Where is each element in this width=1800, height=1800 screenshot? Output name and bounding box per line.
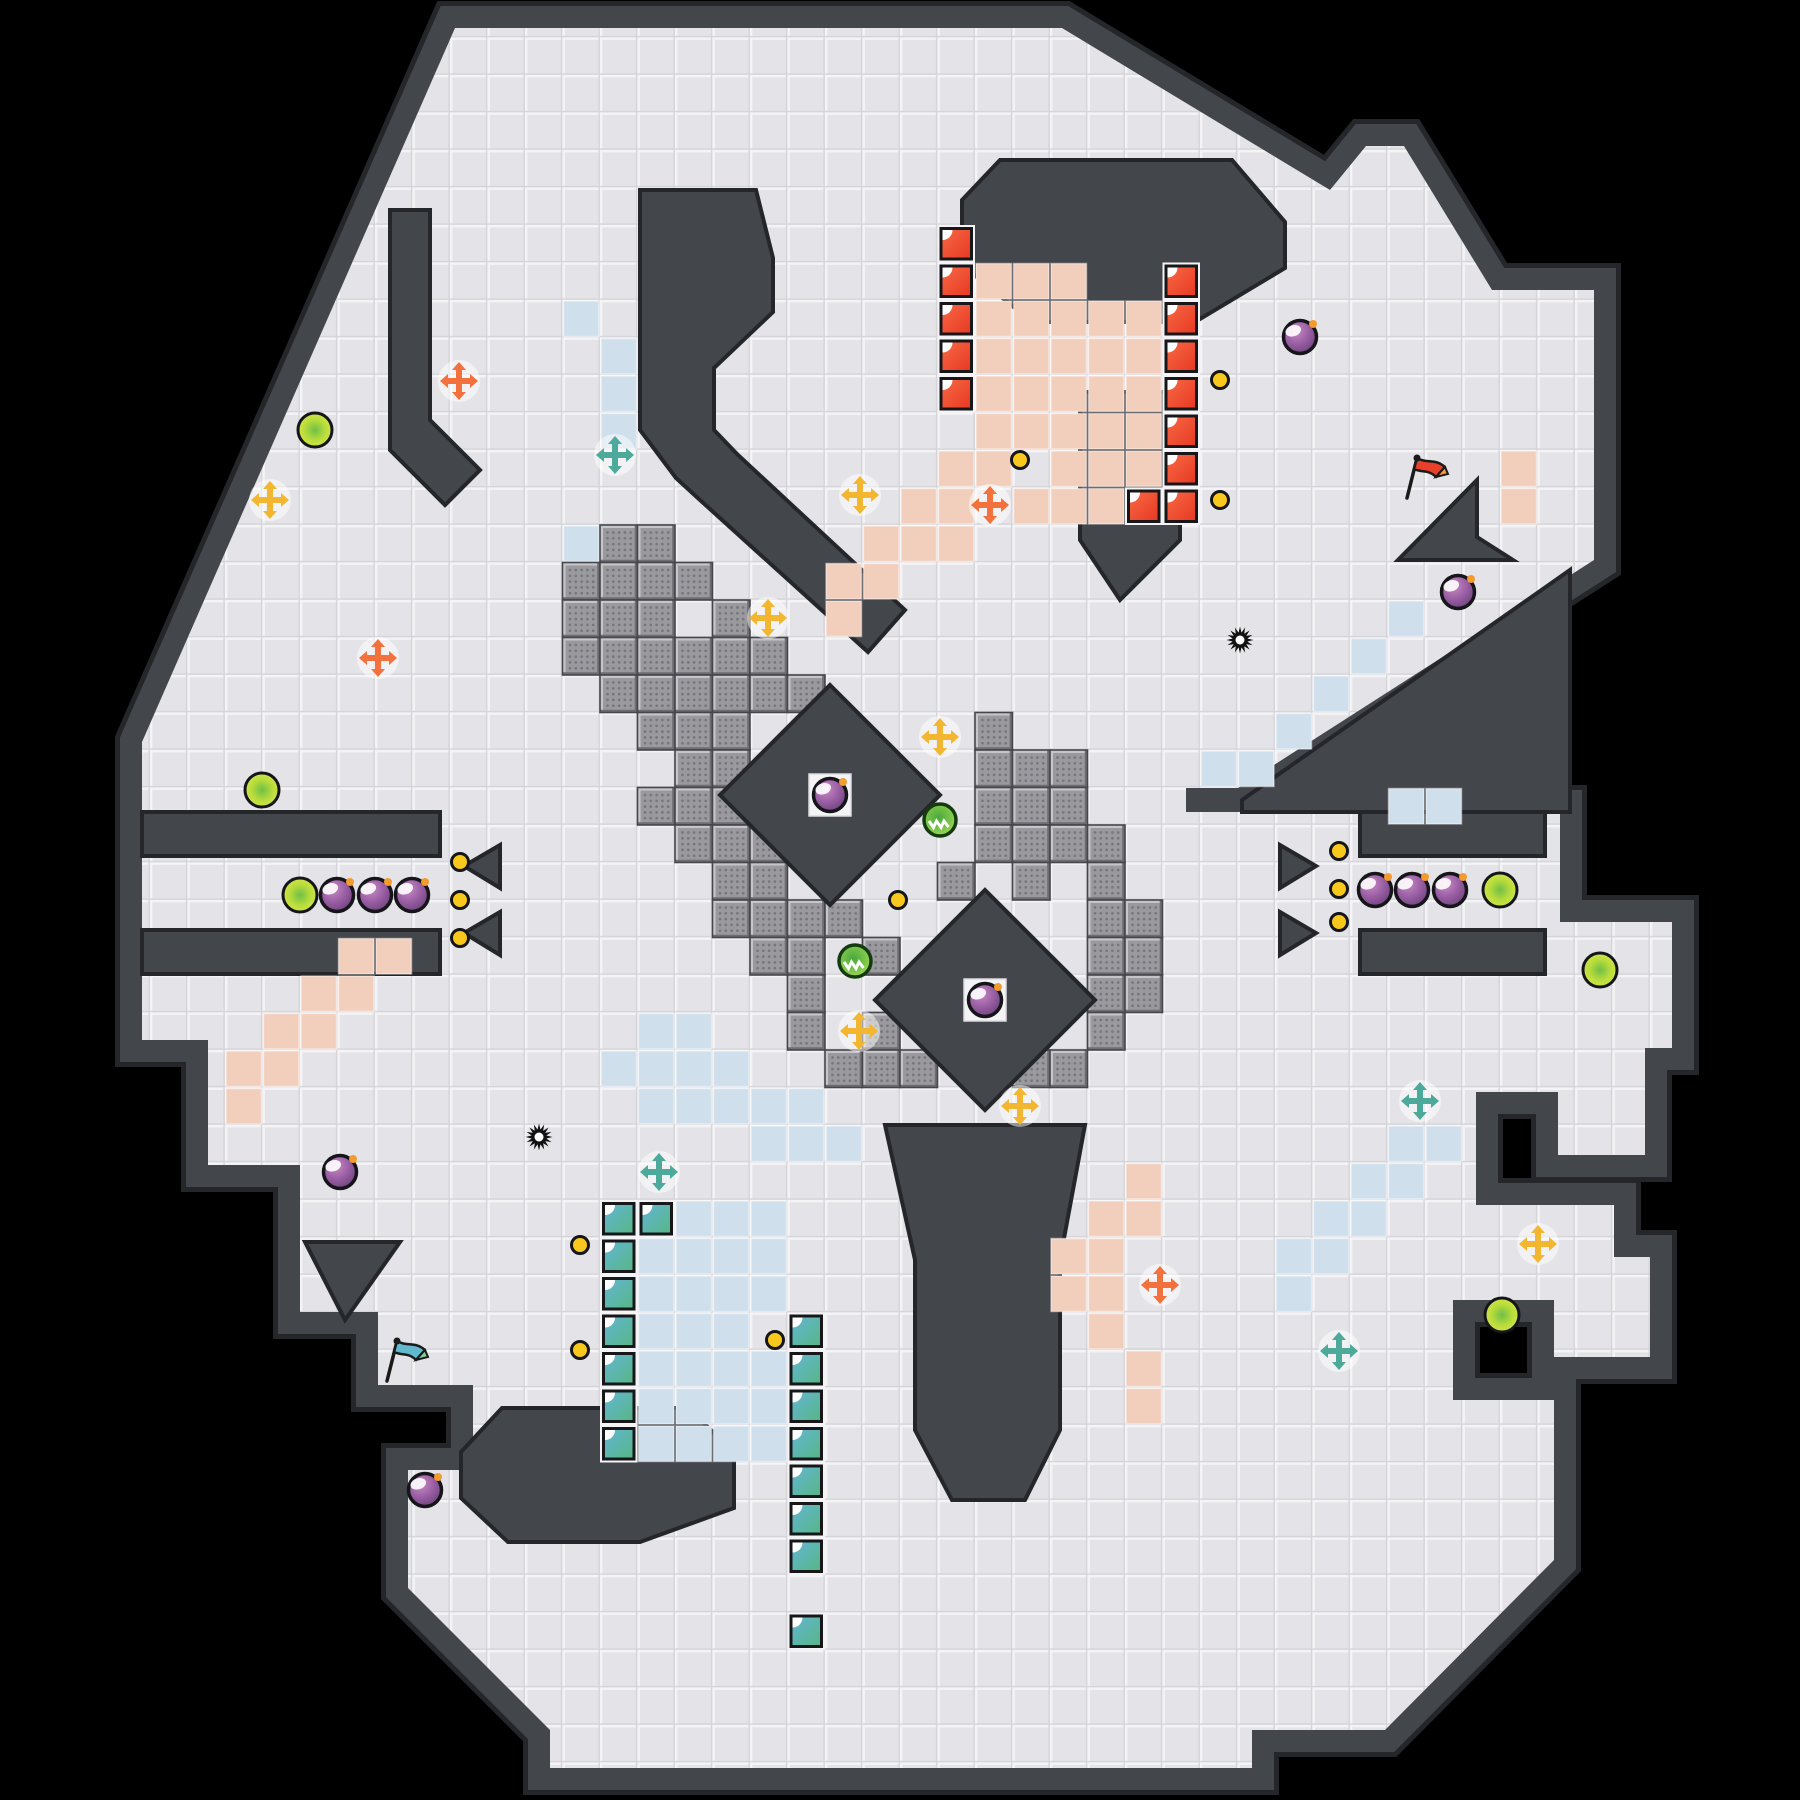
blue-floor-tile <box>714 1426 750 1462</box>
pink-floor-tile <box>1014 339 1050 375</box>
bomb-item[interactable] <box>1284 320 1318 354</box>
gray-block <box>1088 975 1126 1013</box>
blue-floor-tile <box>714 1051 750 1087</box>
coin-item[interactable] <box>572 1237 589 1254</box>
red-block <box>1163 300 1201 338</box>
lime-orb-item[interactable] <box>1583 953 1617 987</box>
blue-floor-tile <box>1351 1201 1387 1237</box>
gray-block <box>600 600 638 638</box>
blue-floor-tile <box>1351 639 1387 675</box>
pink-floor-tile <box>976 264 1012 300</box>
pink-floor-tile <box>1051 264 1087 300</box>
bomb-spark-icon <box>349 1155 357 1163</box>
red-block <box>938 300 976 338</box>
game-map <box>0 0 1800 1800</box>
teal-block <box>600 1425 638 1463</box>
coin-item[interactable] <box>1212 372 1229 389</box>
teal-block <box>600 1200 638 1238</box>
gray-block <box>788 900 826 938</box>
gray-block <box>713 825 751 863</box>
pink-floor-tile <box>1126 1351 1162 1387</box>
teal-block <box>600 1238 638 1276</box>
pink-floor-tile <box>301 976 337 1012</box>
bomb-spark-icon <box>1309 320 1317 328</box>
gray-block <box>863 1050 901 1088</box>
pink-floor-tile <box>226 1051 262 1087</box>
blue-floor-tile <box>1314 1201 1350 1237</box>
pink-floor-tile <box>1089 376 1125 412</box>
lime-orb-item[interactable] <box>298 413 332 447</box>
pink-floor-tile <box>864 564 900 600</box>
pink-floor-tile <box>1014 489 1050 525</box>
pink-floor-tile <box>1126 301 1162 337</box>
pink-floor-tile <box>1126 1389 1162 1425</box>
gray-block <box>1050 825 1088 863</box>
pink-floor-tile <box>1051 1239 1087 1275</box>
gray-block <box>788 975 826 1013</box>
red-block <box>1163 338 1201 376</box>
gray-block <box>713 600 751 638</box>
move-pad-teal[interactable] <box>1318 1330 1360 1372</box>
pink-floor-tile <box>1089 339 1125 375</box>
move-pad-orange[interactable] <box>1139 1264 1181 1306</box>
pink-floor-tile <box>339 939 375 975</box>
blue-floor-tile <box>1426 789 1462 825</box>
game-viewport <box>0 0 1800 1800</box>
move-pad-teal[interactable] <box>638 1151 680 1193</box>
blue-floor-tile <box>639 1389 675 1425</box>
blue-floor-tile <box>639 1089 675 1125</box>
bomb-item[interactable] <box>324 1155 358 1189</box>
gray-block <box>600 675 638 713</box>
red-block <box>1163 413 1201 451</box>
gray-block <box>1088 863 1126 901</box>
pink-floor-tile <box>901 526 937 562</box>
bomb-spark-icon <box>346 878 354 886</box>
lime-orb-item[interactable] <box>245 773 279 807</box>
bomb-spark-icon <box>384 878 392 886</box>
gray-block <box>675 563 713 601</box>
blue-floor-tile <box>601 1051 637 1087</box>
blue-floor-tile <box>639 1014 675 1050</box>
pink-floor-tile <box>1089 1314 1125 1350</box>
gray-block <box>638 788 676 826</box>
gray-block <box>1088 938 1126 976</box>
blue-floor-tile <box>751 1089 787 1125</box>
gray-block <box>1013 863 1051 901</box>
gray-block <box>638 600 676 638</box>
blue-floor-tile <box>1389 1164 1425 1200</box>
gray-block <box>713 675 751 713</box>
pink-floor-tile <box>1089 1276 1125 1312</box>
gray-block <box>1125 975 1163 1013</box>
red-block <box>938 263 976 301</box>
blue-floor-tile <box>676 1239 712 1275</box>
bomb-spark-icon <box>839 778 847 786</box>
gray-block <box>1050 1050 1088 1088</box>
blue-floor-tile <box>789 1089 825 1125</box>
red-block <box>1163 488 1201 526</box>
gray-block <box>675 638 713 676</box>
gray-block <box>788 1013 826 1051</box>
gray-block <box>750 638 788 676</box>
pink-floor-tile <box>1014 301 1050 337</box>
bomb-item[interactable] <box>359 878 393 912</box>
chomper-item[interactable] <box>839 945 871 977</box>
blue-floor-tile <box>714 1239 750 1275</box>
coin-item[interactable] <box>1012 452 1029 469</box>
teal-block <box>638 1200 676 1238</box>
blue-floor-tile <box>714 1276 750 1312</box>
coin-item[interactable] <box>452 930 469 947</box>
pink-floor-tile <box>264 1014 300 1050</box>
coin-item[interactable] <box>1212 492 1229 509</box>
blue-floor-tile <box>751 1239 787 1275</box>
bomb-item[interactable] <box>396 878 430 912</box>
pink-floor-tile <box>226 1089 262 1125</box>
blue-floor-tile <box>789 1126 825 1162</box>
blue-floor-tile <box>676 1051 712 1087</box>
gray-block <box>938 863 976 901</box>
bomb-spark-icon <box>1467 575 1475 583</box>
pink-floor-tile <box>1089 1201 1125 1237</box>
gray-block <box>1125 938 1163 976</box>
chomper-item[interactable] <box>924 804 956 836</box>
pink-floor-tile <box>976 414 1012 450</box>
move-pad-teal[interactable] <box>1399 1080 1441 1122</box>
coin-item[interactable] <box>572 1342 589 1359</box>
move-pad-yellow[interactable] <box>838 1010 880 1052</box>
pink-floor-tile <box>1014 376 1050 412</box>
bomb-item[interactable] <box>1359 873 1393 907</box>
red-block <box>1163 375 1201 413</box>
gray-block <box>713 638 751 676</box>
gray-block <box>638 638 676 676</box>
move-pad-yellow[interactable] <box>747 597 789 639</box>
bomb-spark-icon <box>1421 873 1429 881</box>
pink-floor-tile <box>1089 451 1125 487</box>
gray-block <box>638 713 676 751</box>
blue-floor-tile <box>1276 1276 1312 1312</box>
pink-floor-tile <box>826 601 862 637</box>
blue-floor-tile <box>676 1014 712 1050</box>
lime-orb-item[interactable] <box>1485 1298 1519 1332</box>
pink-floor-tile <box>1126 414 1162 450</box>
blue-floor-tile <box>676 1426 712 1462</box>
blue-floor-tile <box>676 1201 712 1237</box>
gray-block <box>563 563 601 601</box>
teal-block <box>600 1313 638 1351</box>
gray-block <box>713 713 751 751</box>
pink-floor-tile <box>376 939 412 975</box>
blue-floor-tile <box>751 1389 787 1425</box>
blue-floor-tile <box>1276 714 1312 750</box>
gray-block <box>675 825 713 863</box>
blue-floor-tile <box>751 1201 787 1237</box>
gray-block <box>600 525 638 563</box>
red-block <box>1125 488 1163 526</box>
teal-block <box>788 1350 826 1388</box>
gray-block <box>638 675 676 713</box>
gray-block <box>975 825 1013 863</box>
bomb-spark-icon <box>1384 873 1392 881</box>
gray-block <box>713 863 751 901</box>
pink-floor-tile <box>1501 451 1537 487</box>
coin-item[interactable] <box>1331 843 1348 860</box>
move-pad-teal[interactable] <box>594 434 636 476</box>
coin-item[interactable] <box>452 892 469 909</box>
gray-block <box>975 713 1013 751</box>
blue-floor-tile <box>639 1314 675 1350</box>
blue-floor-tile <box>751 1426 787 1462</box>
pink-floor-tile <box>976 301 1012 337</box>
bomb-item[interactable] <box>1396 873 1430 907</box>
move-pad-orange[interactable] <box>357 637 399 679</box>
pink-floor-tile <box>339 976 375 1012</box>
blue-floor-tile <box>676 1276 712 1312</box>
pink-floor-tile <box>939 451 975 487</box>
bomb-spark-icon <box>434 1473 442 1481</box>
gray-block <box>750 900 788 938</box>
teal-block <box>788 1425 826 1463</box>
pink-floor-tile <box>976 376 1012 412</box>
pink-floor-tile <box>1051 339 1087 375</box>
blue-floor-tile <box>1276 1239 1312 1275</box>
blue-floor-tile <box>1426 1126 1462 1162</box>
gray-block <box>825 1050 863 1088</box>
blue-floor-tile <box>1351 1164 1387 1200</box>
gray-block <box>1088 1013 1126 1051</box>
bomb-spark-icon <box>421 878 429 886</box>
move-pad-yellow[interactable] <box>999 1085 1041 1127</box>
pink-floor-tile <box>1089 414 1125 450</box>
gray-block <box>1088 900 1126 938</box>
gray-block <box>1125 900 1163 938</box>
pink-floor-tile <box>1051 376 1087 412</box>
gray-block <box>1088 825 1126 863</box>
pink-floor-tile <box>1501 489 1537 525</box>
blue-floor-tile <box>676 1389 712 1425</box>
pink-floor-tile <box>1051 414 1087 450</box>
blue-floor-tile <box>1389 1126 1425 1162</box>
teal-block <box>600 1350 638 1388</box>
blue-floor-tile <box>639 1351 675 1387</box>
blue-floor-tile <box>1389 601 1425 637</box>
red-block <box>1163 450 1201 488</box>
red-block <box>938 338 976 376</box>
pink-floor-tile <box>1126 1164 1162 1200</box>
gray-block <box>563 600 601 638</box>
blue-floor-tile <box>826 1126 862 1162</box>
blue-floor-tile <box>564 301 600 337</box>
gray-block <box>1050 788 1088 826</box>
blue-floor-tile <box>1314 1239 1350 1275</box>
teal-block <box>788 1388 826 1426</box>
gear-hazard[interactable] <box>1227 627 1254 654</box>
move-pad-orange[interactable] <box>969 484 1011 526</box>
pink-floor-tile <box>1051 1276 1087 1312</box>
pink-floor-tile <box>1126 1201 1162 1237</box>
teal-block <box>788 1313 826 1351</box>
pink-floor-tile <box>939 489 975 525</box>
pink-floor-tile <box>939 526 975 562</box>
move-pad-yellow[interactable] <box>249 479 291 521</box>
teal-block <box>600 1275 638 1313</box>
pink-floor-tile <box>1014 414 1050 450</box>
pink-floor-tile <box>901 489 937 525</box>
red-block <box>938 375 976 413</box>
gray-block <box>675 713 713 751</box>
pink-floor-tile <box>301 1014 337 1050</box>
blue-floor-tile <box>676 1314 712 1350</box>
coin-item[interactable] <box>767 1332 784 1349</box>
gray-block <box>750 863 788 901</box>
gray-block <box>1013 750 1051 788</box>
teal-block <box>788 1500 826 1538</box>
blue-floor-tile <box>676 1089 712 1125</box>
gray-block <box>600 563 638 601</box>
blue-floor-tile <box>639 1426 675 1462</box>
blue-floor-tile <box>714 1351 750 1387</box>
pink-floor-tile <box>1051 489 1087 525</box>
pink-floor-tile <box>1051 451 1087 487</box>
move-pad-yellow[interactable] <box>919 716 961 758</box>
pink-floor-tile <box>1014 264 1050 300</box>
gray-block <box>563 638 601 676</box>
bomb-item[interactable] <box>321 878 355 912</box>
gray-block <box>675 750 713 788</box>
gray-block <box>675 675 713 713</box>
pink-floor-tile <box>864 526 900 562</box>
blue-floor-tile <box>601 339 637 375</box>
blue-floor-tile <box>1201 751 1237 787</box>
gray-block <box>975 788 1013 826</box>
red-block <box>938 225 976 263</box>
gray-block <box>788 938 826 976</box>
coin-item[interactable] <box>1331 881 1348 898</box>
bomb-item[interactable] <box>1442 575 1476 609</box>
blue-floor-tile <box>714 1089 750 1125</box>
blue-floor-tile <box>676 1351 712 1387</box>
blue-floor-tile <box>1389 789 1425 825</box>
pink-floor-tile <box>1126 376 1162 412</box>
move-pad-yellow[interactable] <box>1517 1223 1559 1265</box>
blue-floor-tile <box>751 1126 787 1162</box>
gray-block <box>675 788 713 826</box>
blue-floor-tile <box>751 1276 787 1312</box>
move-pad-orange[interactable] <box>438 360 480 402</box>
pink-floor-tile <box>264 1051 300 1087</box>
teal-block <box>600 1388 638 1426</box>
gray-block <box>1013 825 1051 863</box>
pink-floor-tile <box>1089 301 1125 337</box>
lime-orb-item[interactable] <box>283 878 317 912</box>
gray-block <box>638 563 676 601</box>
gray-block <box>1013 788 1051 826</box>
blue-floor-tile <box>714 1201 750 1237</box>
coin-item[interactable] <box>1331 914 1348 931</box>
blue-floor-tile <box>639 1276 675 1312</box>
gray-block <box>750 938 788 976</box>
pink-floor-tile <box>1089 489 1125 525</box>
blue-floor-tile <box>1314 676 1350 712</box>
bomb-spark-icon <box>994 983 1002 991</box>
teal-block <box>788 1463 826 1501</box>
coin-item[interactable] <box>452 854 469 871</box>
pink-floor-tile <box>1126 451 1162 487</box>
blue-floor-tile <box>714 1314 750 1350</box>
gray-block <box>600 638 638 676</box>
pink-floor-tile <box>1089 1239 1125 1275</box>
gray-block <box>638 525 676 563</box>
pink-floor-tile <box>976 451 1012 487</box>
gray-block <box>975 750 1013 788</box>
blue-floor-tile <box>601 376 637 412</box>
gear-hazard[interactable] <box>526 1124 553 1151</box>
blue-floor-tile <box>564 526 600 562</box>
blue-floor-tile <box>714 1389 750 1425</box>
pink-floor-tile <box>826 564 862 600</box>
gray-block <box>713 900 751 938</box>
coin-item[interactable] <box>890 892 907 909</box>
lime-orb-item[interactable] <box>1483 873 1517 907</box>
bomb-item[interactable] <box>1434 873 1468 907</box>
gray-block <box>750 675 788 713</box>
bomb-item[interactable] <box>409 1473 443 1507</box>
blue-floor-tile <box>1239 751 1275 787</box>
red-block <box>1163 263 1201 301</box>
gray-block <box>1050 750 1088 788</box>
pink-floor-tile <box>1051 301 1087 337</box>
teal-block <box>788 1613 826 1651</box>
bomb-spark-icon <box>1459 873 1467 881</box>
blue-floor-tile <box>751 1351 787 1387</box>
move-pad-yellow[interactable] <box>839 474 881 516</box>
wall-corridor-left-top <box>142 812 440 856</box>
wall-corridor-right-bottom <box>1360 930 1545 974</box>
bomb-item[interactable] <box>969 983 1003 1017</box>
pink-floor-tile <box>1126 339 1162 375</box>
blue-floor-tile <box>639 1051 675 1087</box>
pink-floor-tile <box>976 339 1012 375</box>
bomb-item[interactable] <box>814 778 848 812</box>
blue-floor-tile <box>639 1239 675 1275</box>
teal-block <box>788 1538 826 1576</box>
